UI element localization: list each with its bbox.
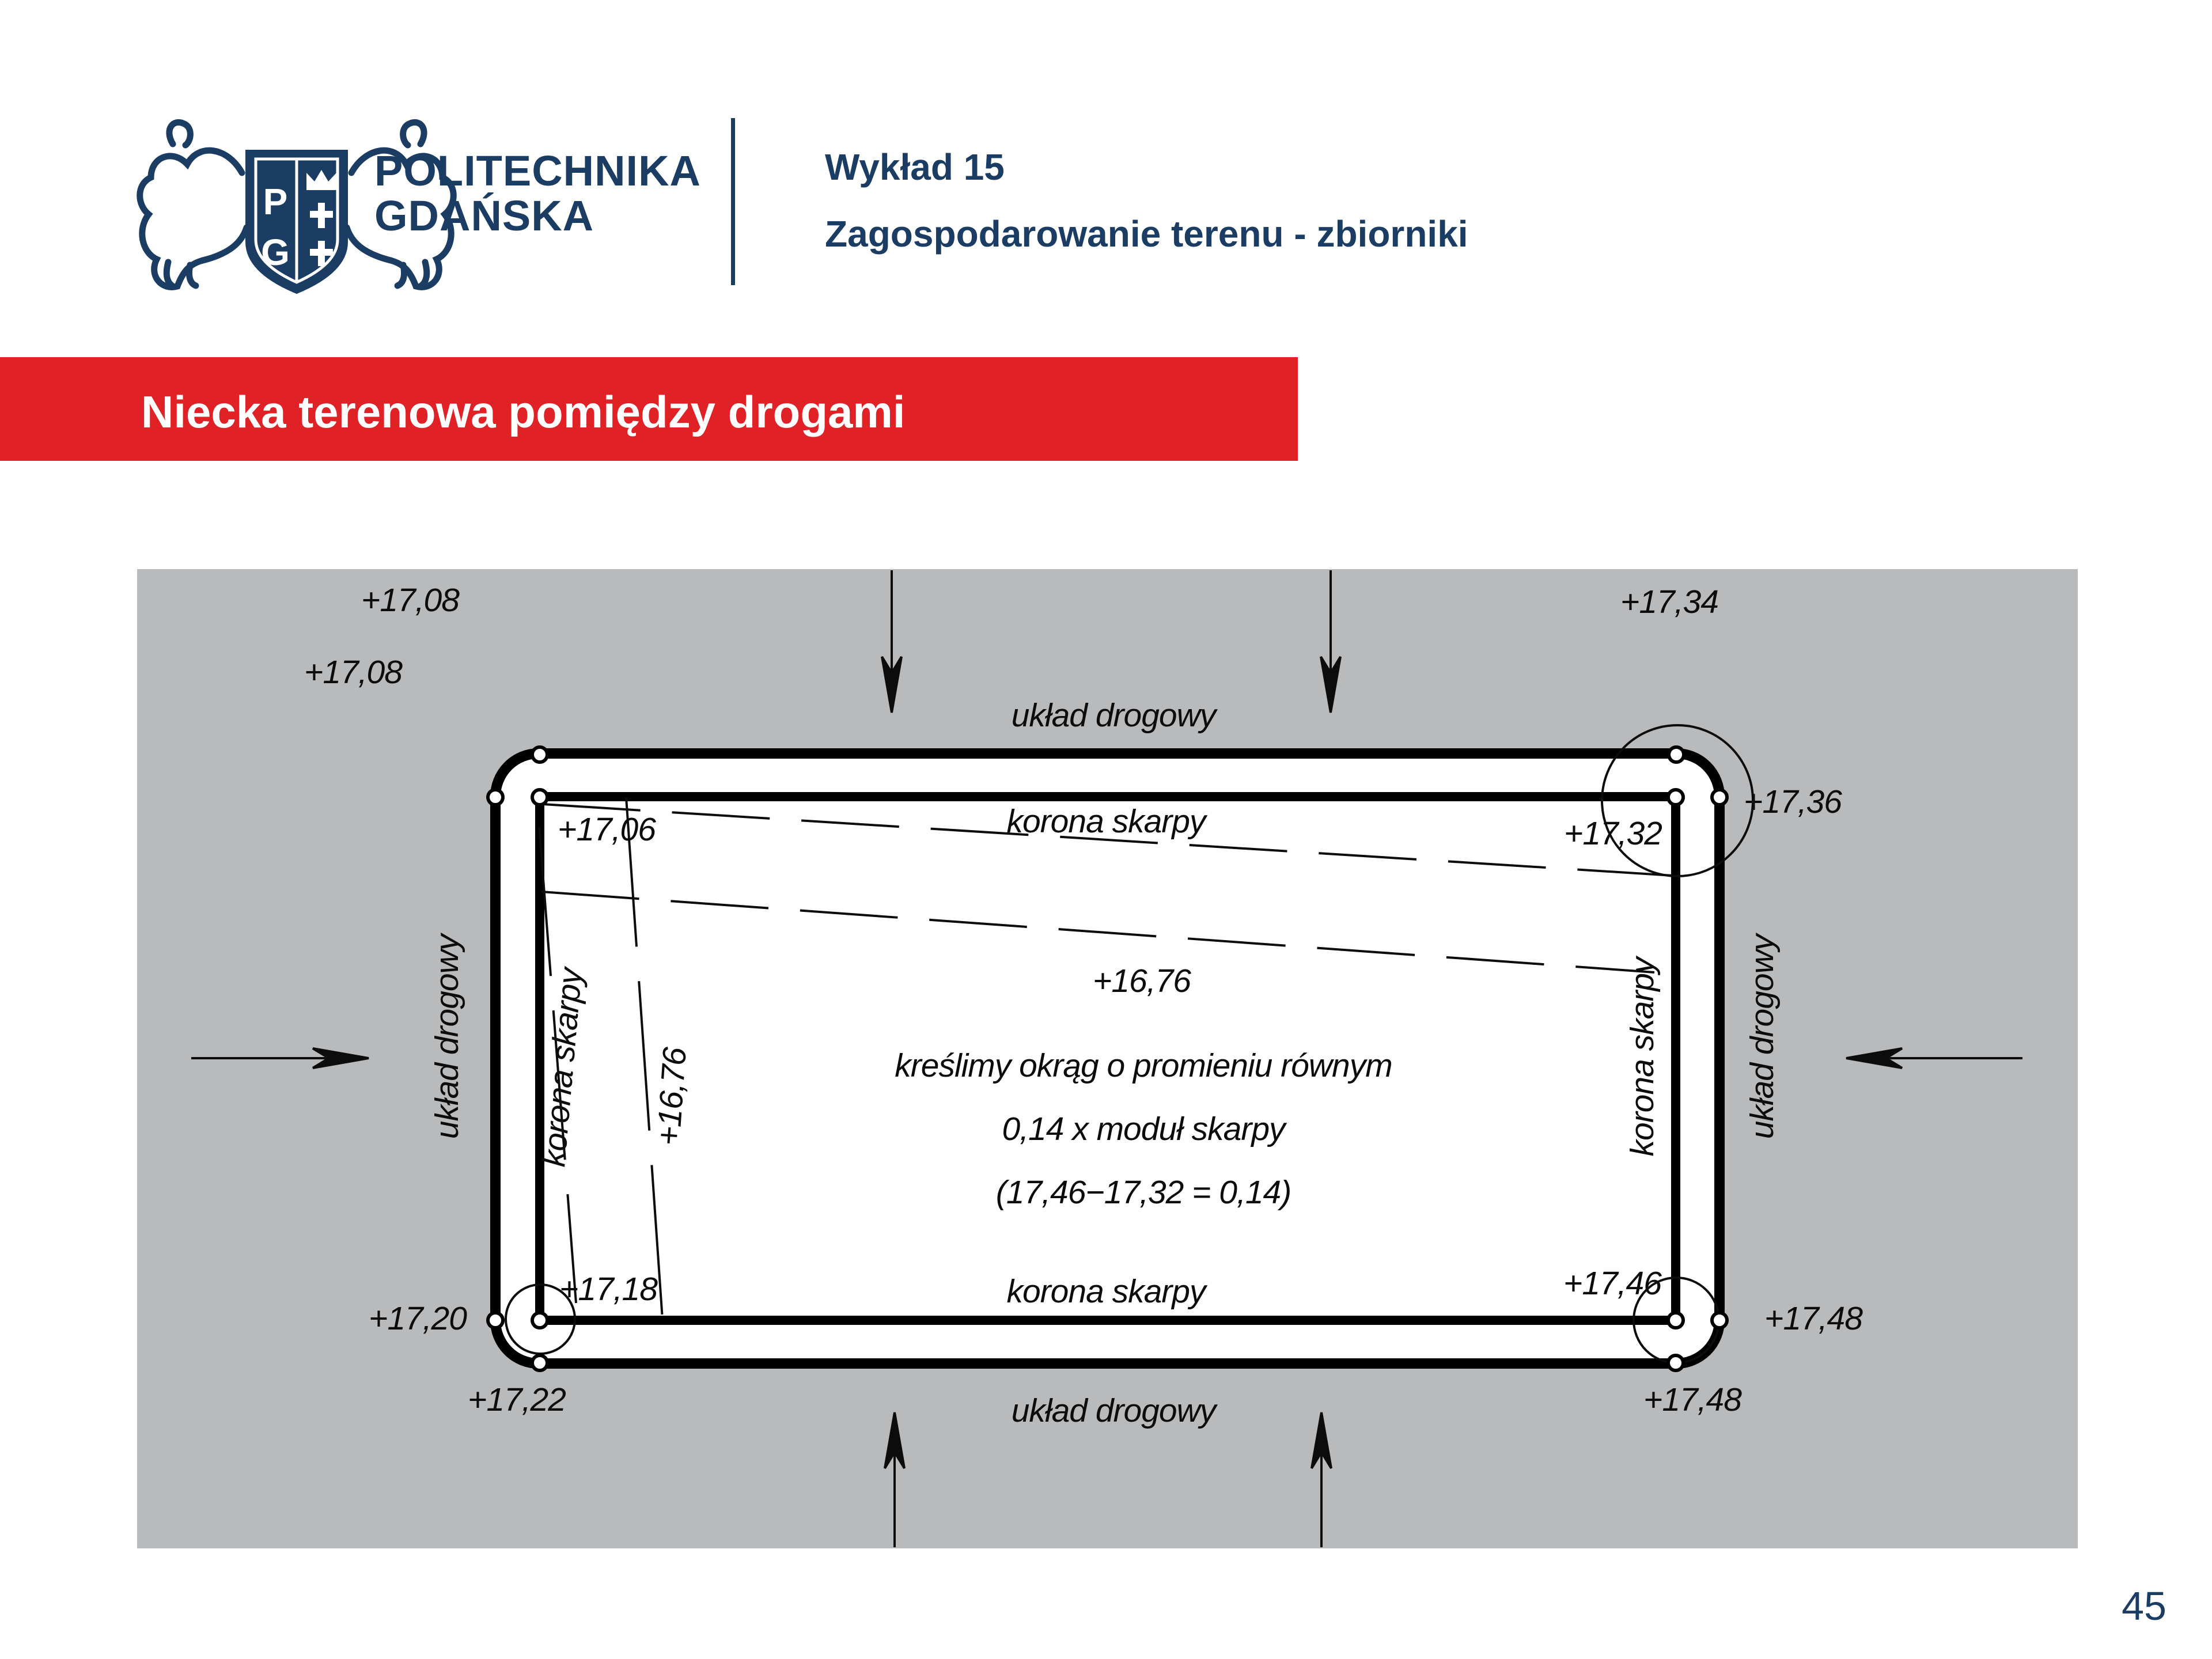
slide: P G POLITECHNIKA GDAŃSKA Wykład 15 Zagos… <box>0 0 2212 1659</box>
node-bl-bottom <box>532 1355 547 1370</box>
node-br-right <box>1712 1313 1727 1328</box>
road-label-left: układ drogowy <box>429 932 465 1139</box>
university-logo: P G POLITECHNIKA GDAŃSKA <box>140 122 701 293</box>
title-banner: Niecka terenowa pomiędzy drogami <box>0 357 1298 461</box>
note-line-2: 0,14 x moduł skarpy <box>1002 1111 1287 1147</box>
crest-label-right: korona skarpy <box>1624 955 1661 1157</box>
crest-label-bottom: korona skarpy <box>1006 1273 1208 1310</box>
header-divider <box>731 118 735 285</box>
slide-title: Niecka terenowa pomiędzy drogami <box>141 387 905 437</box>
note-line-1: kreślimy okrąg o promieniu równym <box>895 1047 1392 1084</box>
logo-lion-left-icon <box>140 122 247 287</box>
logo-shield-icon: P G <box>247 151 347 293</box>
crest-label-top: korona skarpy <box>1006 803 1208 840</box>
elevation-tr-inner: +17,32 <box>1564 815 1662 852</box>
lecture-topic: Zagospodarowanie terenu - zbiorniki <box>825 213 1468 255</box>
road-label-top: układ drogowy <box>1012 697 1218 734</box>
node-bl-inner <box>532 1313 547 1328</box>
logo-letter-g: G <box>261 232 290 273</box>
node-tl-inner <box>532 790 547 805</box>
lecture-number: Wykład 15 <box>825 146 1005 188</box>
road-label-right: układ drogowy <box>1744 932 1781 1139</box>
node-tl-top <box>532 747 547 762</box>
elevation-br-right: +17,48 <box>1764 1300 1863 1337</box>
elevation-bl-inner: +17,18 <box>559 1271 658 1308</box>
node-br-bottom <box>1668 1355 1683 1370</box>
road-label-bottom: układ drogowy <box>1012 1392 1218 1429</box>
elevation-br-bottom: +17,48 <box>1643 1381 1742 1418</box>
logo-wordmark-line2: GDAŃSKA <box>374 192 594 240</box>
contour-label-center: +16,76 <box>1093 963 1191 999</box>
elevation-bl-left: +17,20 <box>369 1300 467 1337</box>
elevation-tr-right: +17,36 <box>1744 783 1842 820</box>
node-tr-right <box>1712 790 1727 805</box>
logo-letter-p: P <box>263 181 288 222</box>
node-tl-left <box>488 790 503 805</box>
node-tr-top <box>1669 747 1684 762</box>
page-number: 45 <box>2122 1584 2166 1628</box>
slide-canvas: P G POLITECHNIKA GDAŃSKA Wykład 15 Zagos… <box>0 0 2212 1659</box>
contour-label-left: +16,76 <box>650 1046 694 1146</box>
node-bl-left <box>488 1313 503 1328</box>
basin-diagram: układ drogowy układ drogowy układ drogow… <box>137 569 2078 1548</box>
elevation-tl-inner: +17,06 <box>558 811 656 848</box>
logo-wordmark-line1: POLITECHNIKA <box>374 147 701 195</box>
elevation-tl-left: +17,08 <box>304 654 403 691</box>
elevation-bl-bottom: +17,22 <box>468 1381 566 1418</box>
note-line-3: (17,46−17,32 = 0,14) <box>996 1174 1291 1211</box>
node-br-inner <box>1668 1313 1683 1328</box>
node-tr-inner <box>1668 790 1683 805</box>
elevation-br-inner: +17,46 <box>1563 1265 1662 1302</box>
elevation-tr-top: +17,34 <box>1620 584 1718 620</box>
elevation-tl-top: +17,08 <box>361 582 460 619</box>
